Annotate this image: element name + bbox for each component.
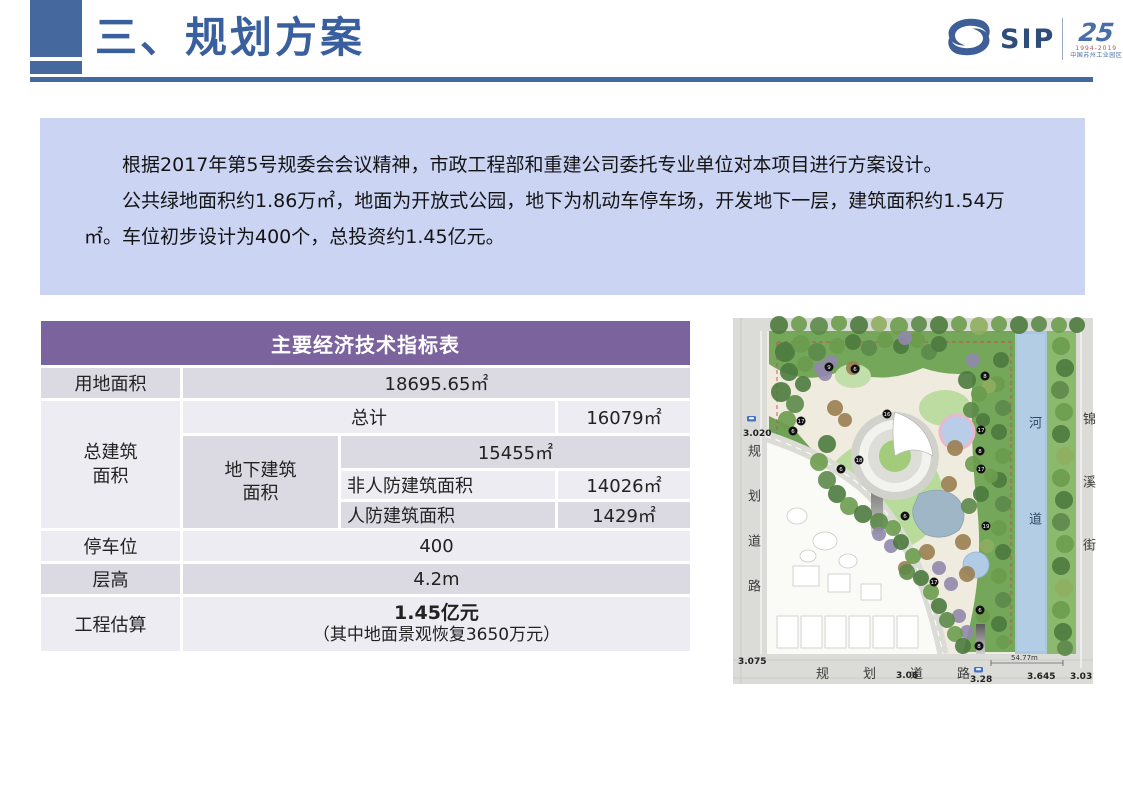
elevation-label: 3.645 bbox=[1027, 672, 1055, 682]
sip-logo: SIP 25 1994-2019 中国苏州工业园区 bbox=[945, 16, 1122, 62]
car-icon bbox=[747, 416, 756, 422]
table-title: 主要经济技术指标表 bbox=[40, 320, 692, 367]
svg-text:6: 6 bbox=[978, 608, 982, 614]
elevation-label: 3.075 bbox=[738, 657, 766, 667]
logo-divider bbox=[1062, 18, 1063, 60]
svg-text:9: 9 bbox=[827, 365, 831, 371]
svg-text:19: 19 bbox=[983, 524, 990, 530]
parking-label: 停车位 bbox=[40, 530, 182, 563]
svg-text:16: 16 bbox=[884, 412, 891, 418]
non-civil-defense-label: 非人防建筑面积 bbox=[340, 470, 557, 501]
elevation-label: 3.06 bbox=[896, 671, 918, 681]
estimate-label: 工程估算 bbox=[40, 596, 182, 653]
svg-text:17: 17 bbox=[978, 467, 985, 473]
svg-text:6: 6 bbox=[839, 467, 843, 473]
intro-paragraph-1: 根据2017年第5号规委会会议精神，市政工程部和重建公司委托专业单位对本项目进行… bbox=[40, 147, 1085, 183]
svg-text:18: 18 bbox=[856, 458, 863, 464]
civil-defense-label: 人防建筑面积 bbox=[340, 501, 557, 530]
estimate-value: 1.45亿元 bbox=[185, 602, 688, 626]
sip-logo-text: SIP bbox=[1000, 24, 1055, 55]
site-plan: 96816176178186176191768 河道 锦溪街 规划道路 规划道路… bbox=[733, 316, 1093, 688]
title-divider-line bbox=[30, 77, 1093, 82]
total-value: 16079㎡ bbox=[557, 400, 692, 435]
land-area-value: 18695.65㎡ bbox=[182, 367, 692, 400]
anniversary-number: 25 bbox=[1077, 19, 1116, 47]
total-floor-area-label: 总建筑面积 bbox=[40, 400, 182, 530]
parking-value: 400 bbox=[182, 530, 692, 563]
svg-text:17: 17 bbox=[798, 419, 805, 425]
land-area-label: 用地面积 bbox=[40, 367, 182, 400]
non-civil-defense-value: 14026㎡ bbox=[557, 470, 692, 501]
civil-defense-value: 1429㎡ bbox=[557, 501, 692, 530]
svg-text:8: 8 bbox=[978, 449, 982, 455]
elevation-label: 3.28 bbox=[970, 675, 992, 685]
underground-area-label: 地下建筑面积 bbox=[182, 435, 340, 530]
elevation-label: 3.020 bbox=[743, 429, 771, 439]
river-label: 河道 bbox=[1024, 416, 1043, 608]
intro-paragraph-2: 公共绿地面积约1.86万㎡，地面为开放式公园，地下为机动车停车场，开发地下一层，… bbox=[40, 183, 1085, 255]
intro-text-block: 根据2017年第5号规委会会议精神，市政工程部和重建公司委托专业单位对本项目进行… bbox=[40, 118, 1085, 295]
street-label: 锦溪街 bbox=[1078, 412, 1097, 601]
svg-text:6: 6 bbox=[791, 429, 795, 435]
svg-text:8: 8 bbox=[983, 374, 987, 380]
title-accent-square bbox=[30, 0, 82, 57]
estimate-note: （其中地面景观恢复3650万元） bbox=[185, 625, 688, 646]
page-title: 三、规划方案 bbox=[95, 4, 365, 65]
anniversary-mark: 25 1994-2019 中国苏州工业园区 bbox=[1070, 19, 1122, 60]
svg-text:17: 17 bbox=[931, 580, 938, 586]
svg-text:6: 6 bbox=[903, 514, 907, 520]
estimate-value-cell: 1.45亿元 （其中地面景观恢复3650万元） bbox=[182, 596, 692, 653]
dimension-label: 54.77m bbox=[1011, 654, 1038, 662]
svg-text:6: 6 bbox=[853, 367, 857, 373]
svg-text:8: 8 bbox=[977, 644, 981, 650]
elevation-label: 3.03 bbox=[1070, 672, 1092, 682]
indicators-table: 主要经济技术指标表 用地面积 18695.65㎡ 总建筑面积 总计 16079㎡… bbox=[38, 318, 693, 654]
anniversary-caption: 中国苏州工业园区 bbox=[1070, 53, 1122, 60]
svg-text:17: 17 bbox=[978, 428, 985, 434]
sip-swoosh-icon bbox=[945, 16, 993, 62]
left-road-label: 规划道路 bbox=[743, 444, 762, 624]
title-accent-bar bbox=[30, 61, 82, 74]
total-label: 总计 bbox=[182, 400, 557, 435]
floor-height-value: 4.2m bbox=[182, 563, 692, 596]
floor-height-label: 层高 bbox=[40, 563, 182, 596]
underground-total-value: 15455㎡ bbox=[340, 435, 692, 470]
